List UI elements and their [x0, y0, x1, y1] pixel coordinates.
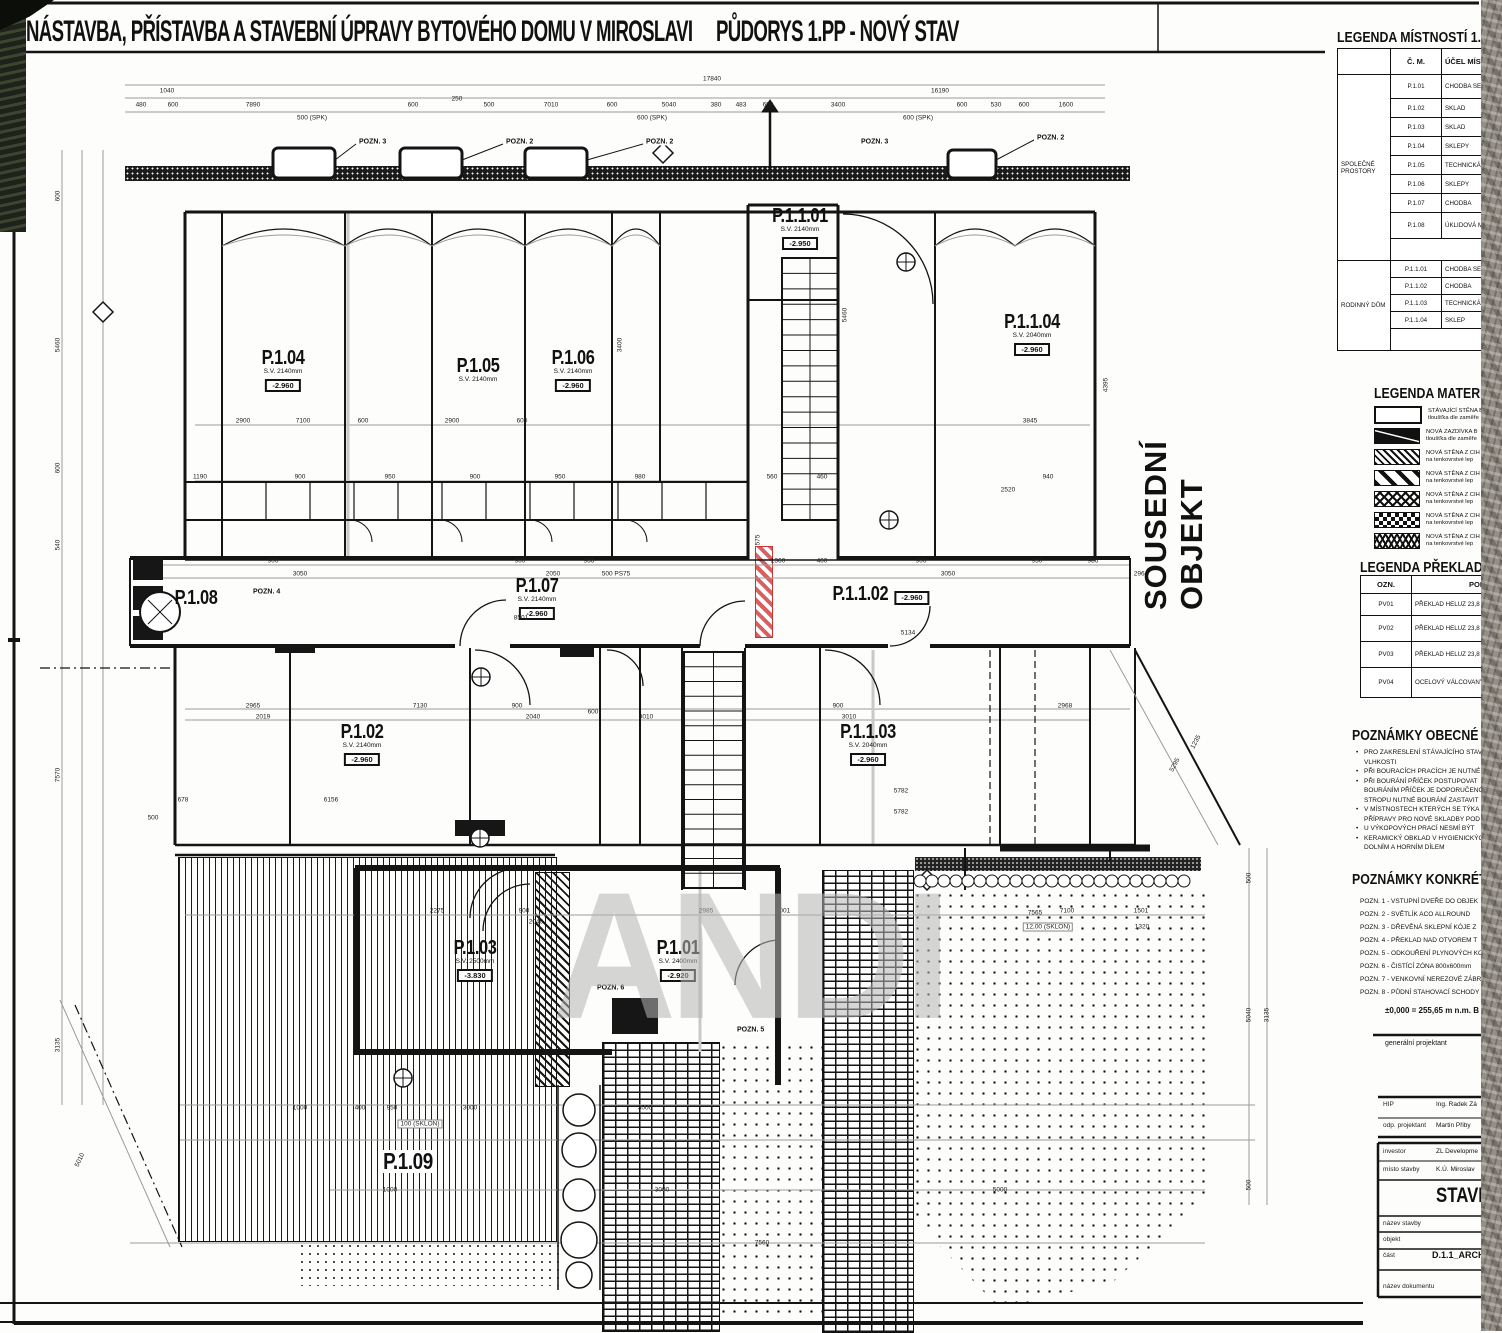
note-text: KERAMICKÝ OBKLAD V HYGIENICKÝCH [1364, 834, 1488, 844]
titleblock-label: odp. projektant [1383, 1122, 1426, 1129]
note-text: STROPU NUTNÉ BOURÁNÍ ZASTAVIT [1364, 796, 1479, 806]
titleblock-label: investor [1383, 1148, 1406, 1155]
material-description: NOVÁ STĚNA Z CIHna tenkovrstvé lep [1426, 471, 1480, 485]
note-text: BOURÁNÍM PŘÍČEK JE DOPORUČENO [1364, 786, 1484, 796]
titleblock-label: název stavby [1383, 1220, 1421, 1227]
note-text: V MÍSTNOSTECH KTERÝCH SE TÝKA [1364, 805, 1479, 815]
drawing-title: NÁSTAVBA, PŘÍSTAVBA A STAVEBNÍ ÚPRAVY BY… [26, 15, 692, 49]
col-header-cm: Č. M. [1391, 49, 1442, 75]
material-desc-line2: na tenkovrstvé lep [1426, 499, 1480, 506]
note-text: VLHKOSTI [1364, 758, 1396, 768]
material-legend-item: NOVÁ STĚNA Z CIHna tenkovrstvé lep [1374, 467, 1483, 488]
material-desc-line1: NOVÁ STĚNA Z CIH [1426, 450, 1480, 457]
room-number-cell: P.1.08 [1391, 213, 1442, 239]
room-number-cell: P.1.1.04 [1391, 312, 1442, 329]
note-specific-line: POZN. 5 - ODKOUŘENÍ PLYNOVÝCH KO [1360, 947, 1483, 960]
material-legend-item: NOVÁ ZAZDÍVKA Btloušťka dle zaměře [1374, 425, 1483, 446]
titleblock-label: část [1383, 1252, 1395, 1259]
material-swatch-sw-cross1 [1374, 491, 1420, 507]
material-description: STÁVAJÍCÍ STĚNA Btloušťka dle zaměře [1428, 408, 1483, 422]
legend-rooms-table: Č. M.ÚČEL MÍSTNOSTISPOLEČNÉ PROSTORYP.1.… [1337, 48, 1502, 351]
elevation-datum: ±0,000 = 255,65 m n.m. B [1385, 1006, 1479, 1015]
material-swatch-sw-infill [1374, 428, 1420, 444]
titleblock-label: HIP [1383, 1101, 1394, 1108]
neighbor-building-label: SOUSEDNÍ OBJEKT [1138, 318, 1210, 610]
note-specific-line: POZN. 8 - PŮDNÍ STAHOVACÍ SCHODY [1360, 986, 1483, 999]
room-number-cell: P.1.1.01 [1391, 261, 1442, 278]
room-number-cell: P.1.06 [1391, 175, 1442, 194]
note-specific-line: POZN. 4 - PŘEKLAD NAD OTVOREM T [1360, 934, 1483, 947]
material-legend-item: NOVÁ STĚNA Z CIHna tenkovrstvé lep [1374, 446, 1483, 467]
lintel-mark-cell: PV03 [1361, 642, 1412, 668]
lintel-mark-cell: PV04 [1361, 668, 1412, 698]
legend-rooms-title: LEGENDA MÍSTNOSTÍ 1.PP [1337, 30, 1497, 46]
material-desc-line2: na tenkovrstvé lep [1426, 478, 1480, 485]
room-number-cell: P.1.1.02 [1391, 278, 1442, 295]
room-number-cell: P.1.02 [1391, 99, 1442, 118]
photo-background-topleft [0, 0, 26, 232]
titleblock-value: Martin Přiby [1436, 1122, 1471, 1129]
room-number-cell: P.1.1.03 [1391, 295, 1442, 312]
material-desc-line2: tloušťka dle zaměře [1426, 436, 1478, 443]
note-general-line: DOLNÍM A HORNÍM DÍLEM [1356, 843, 1488, 853]
note-general-line: •PRO ZAKRESLENÍ STÁVAJÍCÍHO STAV [1356, 748, 1488, 758]
note-specific-line: POZN. 2 - SVĚTLÍK ACO ALLROUND [1360, 908, 1483, 921]
note-text: U VÝKOPOVÝCH PRACÍ NESMÍ BÝT [1364, 824, 1475, 834]
note-text: DOLNÍM A HORNÍM DÍLEM [1364, 843, 1445, 853]
plan-linework [0, 0, 1502, 1331]
notes-specific-title: POZNÁMKY KONKRÉTNÍ [1352, 872, 1499, 888]
legend-materials-list: STÁVAJÍCÍ STĚNA Btloušťka dle zaměřeNOVÁ… [1374, 404, 1483, 551]
material-desc-line2: na tenkovrstvé lep [1426, 541, 1480, 548]
group-label: RODINNÝ DŮM [1338, 261, 1391, 351]
material-desc-line1: NOVÁ ZAZDÍVKA B [1426, 429, 1478, 436]
titleblock-value: ZL Developme [1436, 1148, 1478, 1155]
material-legend-item: NOVÁ STĚNA Z CIHna tenkovrstvé lep [1374, 509, 1483, 530]
room-number-cell: P.1.03 [1391, 118, 1442, 137]
general-designer-label: generální projektant [1385, 1040, 1447, 1047]
titleblock-value: Ing. Radek Zá [1436, 1101, 1477, 1108]
note-specific-line: POZN. 1 - VSTUPNÍ DVEŘE DO OBJEK [1360, 895, 1483, 908]
note-general-line: •PŘI BOURACÍCH PRACÍCH JE NUTNÉ [1356, 767, 1488, 777]
room-number-cell: P.1.01 [1391, 75, 1442, 99]
material-swatch-sw-diag-wide [1374, 470, 1420, 486]
material-swatch-sw-existing [1374, 406, 1422, 424]
bullet-icon: • [1356, 777, 1364, 787]
material-legend-item: NOVÁ STĚNA Z CIHna tenkovrstvé lep [1374, 488, 1483, 509]
bullet-icon: • [1356, 824, 1364, 834]
bullet-icon: • [1356, 748, 1364, 758]
material-swatch-sw-cross2 [1374, 533, 1420, 549]
note-general-line: BOURÁNÍM PŘÍČEK JE DOPORUČENO [1356, 786, 1488, 796]
note-general-line: •KERAMICKÝ OBKLAD V HYGIENICKÝCH [1356, 834, 1488, 844]
material-desc-line1: NOVÁ STĚNA Z CIH [1426, 471, 1480, 478]
bullet-icon: • [1356, 767, 1364, 777]
photo-background-right [1481, 0, 1502, 1331]
notes-general-title: POZNÁMKY OBECNÉ [1352, 728, 1478, 744]
material-desc-line1: NOVÁ STĚNA Z CIH [1426, 513, 1480, 520]
note-general-line: •V MÍSTNOSTECH KTERÝCH SE TÝKA [1356, 805, 1488, 815]
note-general-line: VLHKOSTI [1356, 758, 1488, 768]
note-specific-line: POZN. 6 - ČISTÍCÍ ZÓNA 800x600mm [1360, 960, 1483, 973]
note-general-line: PŘÍPRAVY PRO NOVÉ SKLADBY POD [1356, 815, 1488, 825]
note-general-line: •PŘI BOURÁNÍ PŘÍČEK POSTUPOVAT [1356, 777, 1488, 787]
note-text: PRO ZAKRESLENÍ STÁVAJÍCÍHO STAV [1364, 748, 1482, 758]
notes-specific-list: POZN. 1 - VSTUPNÍ DVEŘE DO OBJEKPOZN. 2 … [1360, 895, 1483, 999]
material-desc-line1: NOVÁ STĚNA Z CIH [1426, 492, 1480, 499]
legend-lintels-title: LEGENDA PŘEKLADŮ [1360, 560, 1492, 576]
legend-corner-cell [1338, 49, 1391, 75]
watermark: ANDI [552, 852, 944, 1060]
lintel-mark-cell: PV02 [1361, 616, 1412, 642]
material-description: NOVÁ ZAZDÍVKA Btloušťka dle zaměře [1426, 429, 1478, 443]
titleblock-label: objekt [1383, 1236, 1400, 1243]
note-text: PŘÍPRAVY PRO NOVÉ SKLADBY POD [1364, 815, 1480, 825]
material-desc-line1: STÁVAJÍCÍ STĚNA B [1428, 408, 1483, 415]
material-desc-line2: na tenkovrstvé lep [1426, 457, 1480, 464]
material-legend-item: NOVÁ STĚNA Z CIHna tenkovrstvé lep [1374, 530, 1483, 551]
titleblock-label: název dokumentu [1383, 1283, 1434, 1290]
note-general-line: STROPU NUTNÉ BOURÁNÍ ZASTAVIT [1356, 796, 1488, 806]
group-label: SPOLEČNÉ PROSTORY [1338, 75, 1391, 261]
material-description: NOVÁ STĚNA Z CIHna tenkovrstvé lep [1426, 513, 1480, 527]
titleblock-label: místo stavby [1383, 1166, 1419, 1173]
material-desc-line1: NOVÁ STĚNA Z CIH [1426, 534, 1480, 541]
room-number-cell: P.1.07 [1391, 194, 1442, 213]
material-legend-item: STÁVAJÍCÍ STĚNA Btloušťka dle zaměře [1374, 404, 1483, 425]
note-specific-line: POZN. 3 - DŘEVĚNÁ SKLEPNÍ KÓJE Z [1360, 921, 1483, 934]
drawing-subtitle: PŮDORYS 1.PP - NOVÝ STAV [716, 15, 959, 49]
room-number-cell: P.1.05 [1391, 156, 1442, 175]
note-text: PŘI BOURACÍCH PRACÍCH JE NUTNÉ [1364, 767, 1480, 777]
material-description: NOVÁ STĚNA Z CIHna tenkovrstvé lep [1426, 492, 1480, 506]
material-swatch-sw-checker [1374, 512, 1420, 528]
material-description: NOVÁ STĚNA Z CIHna tenkovrstvé lep [1426, 534, 1480, 548]
material-swatch-sw-diag-dense [1374, 449, 1420, 465]
col-header-ozn: OZN. [1361, 576, 1412, 594]
note-text: PŘI BOURÁNÍ PŘÍČEK POSTUPOVAT [1364, 777, 1478, 787]
titleblock-value: K.Ú. Miroslav [1436, 1166, 1475, 1173]
bullet-icon: • [1356, 834, 1364, 844]
material-desc-line2: tloušťka dle zaměře [1428, 415, 1483, 422]
material-desc-line2: na tenkovrstvé lep [1426, 520, 1480, 527]
room-number-cell: P.1.04 [1391, 137, 1442, 156]
bullet-icon: • [1356, 805, 1364, 815]
lintel-mark-cell: PV01 [1361, 594, 1412, 616]
material-description: NOVÁ STĚNA Z CIHna tenkovrstvé lep [1426, 450, 1480, 464]
blueprint-page: { "page": { "title_left": "NÁSTAVBA, PŘÍ… [0, 0, 1502, 1331]
notes-general-list: •PRO ZAKRESLENÍ STÁVAJÍCÍHO STAVVLHKOSTI… [1356, 748, 1488, 853]
note-general-line: •U VÝKOPOVÝCH PRACÍ NESMÍ BÝT [1356, 824, 1488, 834]
note-specific-line: POZN. 7 - VENKOVNÍ NEREZOVÉ ZÁBR [1360, 973, 1483, 986]
